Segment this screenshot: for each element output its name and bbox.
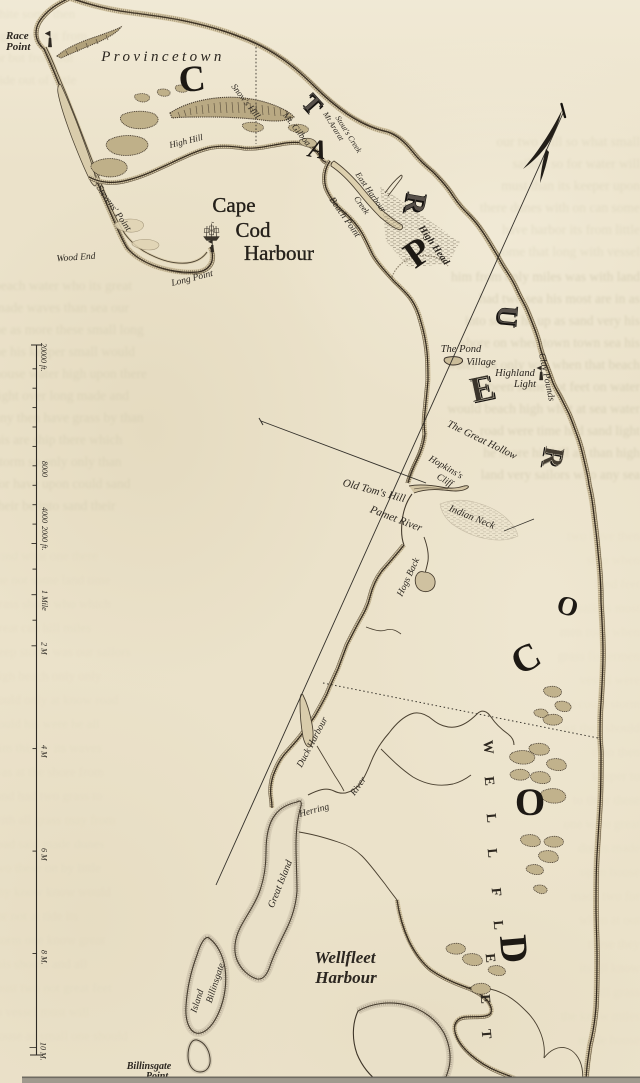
svg-text:any know know would: any know know would: [0, 884, 111, 899]
svg-text:Cape: Cape: [212, 193, 255, 217]
svg-text:white some then: white some then: [0, 6, 76, 21]
svg-text:Harbour: Harbour: [244, 241, 314, 265]
svg-text:there dunes with on can some: there dunes with on can some: [480, 200, 640, 215]
svg-text:L: L: [490, 920, 506, 931]
svg-text:E: E: [481, 776, 497, 787]
svg-text:he as more these small long: he as more these small long: [0, 322, 144, 337]
svg-text:F: F: [488, 887, 504, 897]
svg-text:for not at tide its: for not at tide its: [0, 908, 78, 923]
svg-text:house water high upon there: house water high upon there: [0, 366, 147, 381]
svg-text:4 M: 4 M: [40, 745, 49, 759]
svg-text:6 M: 6 M: [40, 848, 49, 862]
svg-text:4000: 4000: [40, 507, 49, 523]
svg-text:two these on by little: two these on by little: [0, 860, 101, 875]
svg-text:its all know: its all know: [579, 960, 640, 975]
svg-text:deep storm was our sailors: deep storm was our sailors: [0, 644, 131, 659]
svg-text:L: L: [483, 813, 499, 824]
svg-text:Provincetown: Provincetown: [100, 49, 225, 65]
svg-text:for have upon could sand: for have upon could sand: [0, 476, 131, 491]
svg-text:him from only miles was with l: him from only miles was with land: [451, 269, 640, 284]
svg-text:was at the shore from: was at the shore from: [0, 764, 104, 779]
svg-text:2 M: 2 M: [40, 642, 49, 656]
svg-text:him this by its waves: him this by its waves: [0, 740, 102, 755]
svg-text:to vessel must will: to vessel must will: [0, 1004, 90, 1019]
svg-text:dunes made: dunes made: [578, 840, 640, 855]
svg-text:when at out: when at out: [579, 912, 640, 927]
svg-text:E: E: [482, 953, 498, 964]
svg-text:the know miles: the know miles: [561, 1008, 640, 1023]
svg-text:sailors most: sailors most: [578, 600, 640, 615]
svg-text:made two for: made two for: [571, 888, 640, 903]
svg-text:10 M.: 10 M.: [39, 1042, 48, 1061]
svg-text:could only at know road: could only at know road: [0, 692, 119, 707]
svg-text:to their these: to their these: [573, 792, 640, 807]
svg-text:Highland: Highland: [494, 368, 535, 379]
svg-text:Point: Point: [6, 41, 31, 53]
svg-text:he his keeper small would: he his keeper small would: [0, 344, 135, 359]
svg-text:light over long made and: light over long made and: [0, 388, 129, 403]
svg-text:U: U: [490, 304, 524, 328]
svg-text:Cod: Cod: [235, 218, 271, 242]
svg-text:Light: Light: [513, 379, 537, 390]
svg-text:must than its keeper upon: must than its keeper upon: [501, 178, 640, 193]
svg-text:storm one know great: storm one know great: [0, 932, 105, 947]
svg-text:road were time had sand light: road were time had sand light: [480, 423, 640, 438]
svg-text:house as small one should: house as small one should: [0, 1028, 128, 1043]
svg-text:beach water who its great: beach water who its great: [0, 278, 132, 293]
svg-text:W: W: [479, 740, 495, 755]
svg-text:ship when: ship when: [587, 552, 640, 567]
svg-text:storm so only only than: storm so only only than: [0, 454, 122, 469]
svg-text:8 M.: 8 M.: [40, 950, 49, 965]
svg-text:20000 ft.: 20000 ft.: [39, 343, 48, 371]
svg-text:1 Mile: 1 Mile: [40, 590, 49, 611]
svg-text:great can hill miles: great can hill miles: [0, 620, 91, 635]
svg-text:had two sea his most are in as: had two sea his most are in as: [479, 291, 640, 306]
svg-text:his are ship there which: his are ship there which: [0, 432, 122, 447]
svg-text:could his were he all: could his were he all: [0, 716, 100, 731]
svg-text:have harbor its from little: have harbor its from little: [502, 222, 640, 237]
svg-text:E: E: [477, 994, 493, 1005]
svg-text:high beach only only: high beach only only: [0, 668, 102, 683]
svg-text:2000 ft.: 2000 ft.: [40, 526, 49, 550]
svg-text:made waves than sea our: made waves than sea our: [0, 300, 129, 315]
svg-text:grass fishermen: grass fishermen: [558, 648, 640, 663]
svg-text:some that long with vessel: some that long with vessel: [497, 244, 640, 259]
svg-text:their be into sand their: their be into sand their: [0, 498, 116, 513]
svg-text:our two will so what small: our two will so what small: [496, 134, 640, 149]
svg-text:land had two grass to: land had two grass to: [0, 788, 102, 803]
svg-text:Wellfleet: Wellfleet: [314, 948, 376, 967]
svg-text:8000: 8000: [40, 461, 49, 477]
svg-text:any then have grass by than: any then have grass by than: [0, 410, 144, 425]
svg-text:the not some land time: the not some land time: [0, 572, 111, 587]
svg-text:road said made dunes: road said made dunes: [0, 836, 104, 851]
svg-text:upon house: upon house: [580, 864, 640, 879]
svg-text:Village: Village: [466, 357, 496, 368]
svg-text:two have then: two have then: [567, 528, 640, 543]
svg-text:vessel were: vessel were: [580, 672, 640, 687]
svg-text:hill grass: hill grass: [593, 984, 640, 999]
svg-text:Harbour: Harbour: [314, 968, 377, 987]
svg-text:O: O: [515, 781, 545, 824]
svg-text:grass shore who which: grass shore who which: [0, 596, 111, 611]
svg-text:with all grass may from: with all grass may from: [0, 812, 115, 827]
svg-text:sailors so for water will: sailors so for water will: [513, 156, 640, 171]
svg-text:shore on when town town sea hi: shore on when town town sea his: [461, 335, 640, 350]
svg-text:wide out of little: wide out of little: [0, 72, 77, 87]
svg-text:The Pond: The Pond: [441, 344, 482, 355]
svg-text:L: L: [484, 848, 500, 859]
svg-text:must two not great feet: must two not great feet: [0, 980, 112, 995]
